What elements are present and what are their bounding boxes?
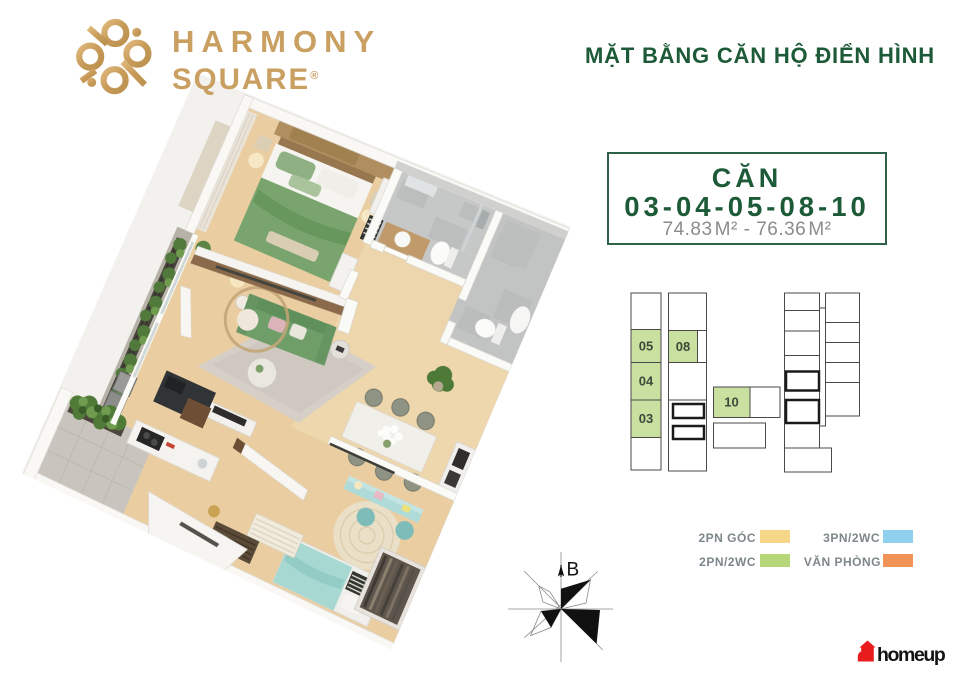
svg-text:homeup: homeup — [877, 644, 946, 666]
svg-text:03: 03 — [639, 411, 653, 426]
svg-text:05: 05 — [639, 339, 653, 354]
svg-text:10: 10 — [724, 395, 738, 410]
svg-text:08: 08 — [676, 339, 690, 354]
svg-text:B: B — [567, 560, 580, 581]
svg-text:04: 04 — [639, 374, 654, 389]
